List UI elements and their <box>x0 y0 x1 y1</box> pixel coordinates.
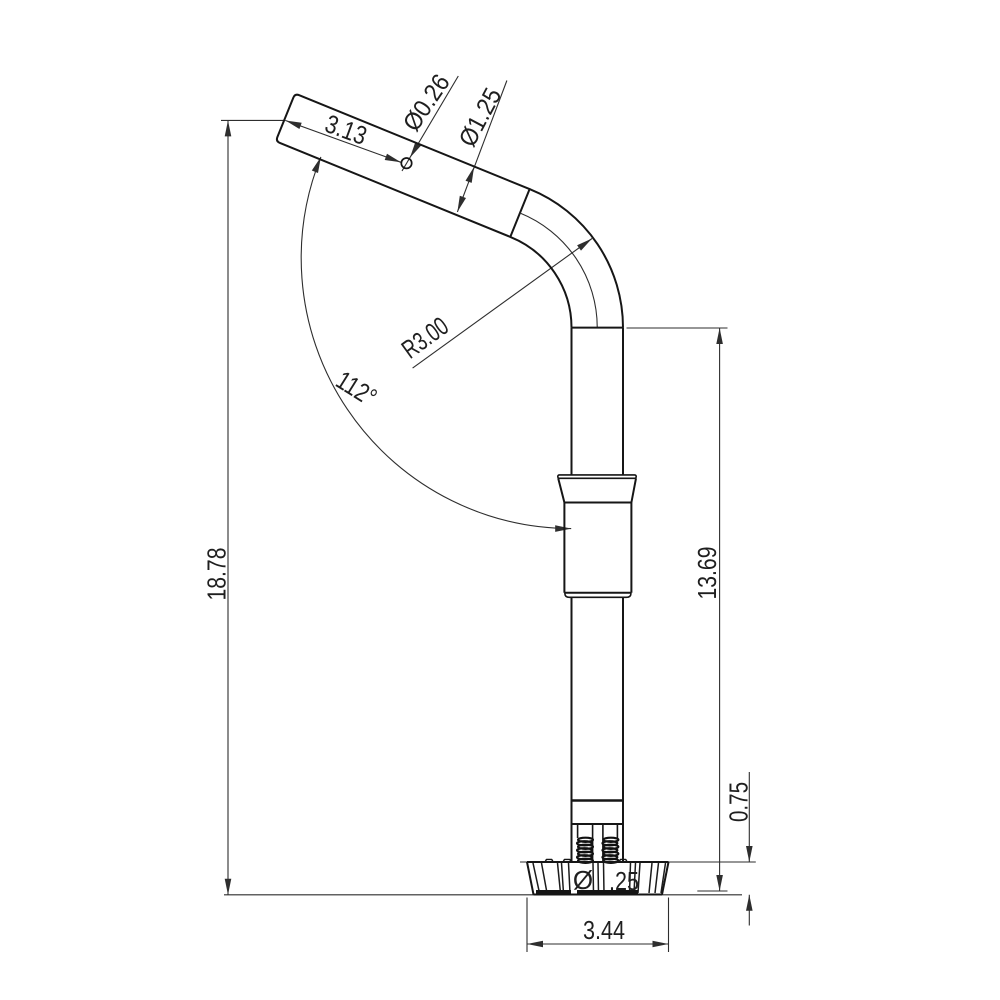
svg-text:3.44: 3.44 <box>583 915 625 945</box>
svg-text:18.78: 18.78 <box>202 548 232 601</box>
svg-text:13.69: 13.69 <box>692 547 722 600</box>
svg-text:.25: .25 <box>609 866 639 896</box>
svg-text:Ø: Ø <box>573 865 593 895</box>
svg-text:0.75: 0.75 <box>724 782 754 822</box>
